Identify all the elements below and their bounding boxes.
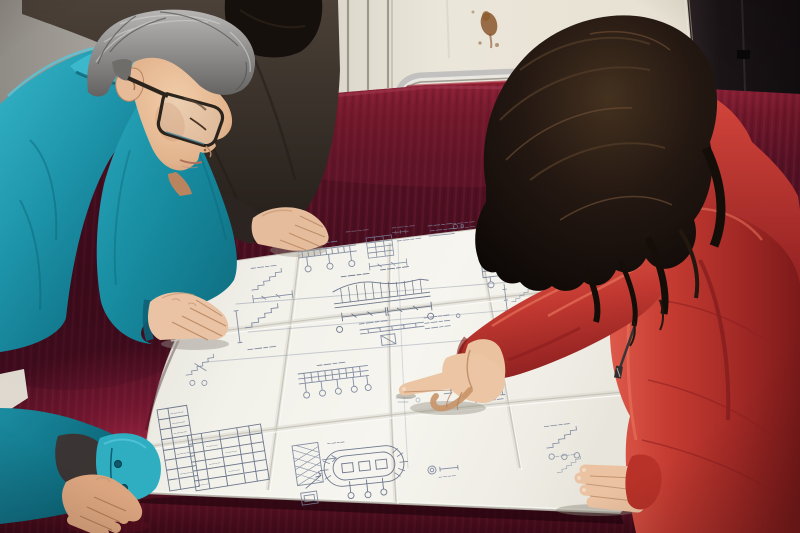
photo-scene: Two workers lean over a large folded eng…	[0, 0, 800, 533]
photo-vignette	[0, 0, 800, 533]
